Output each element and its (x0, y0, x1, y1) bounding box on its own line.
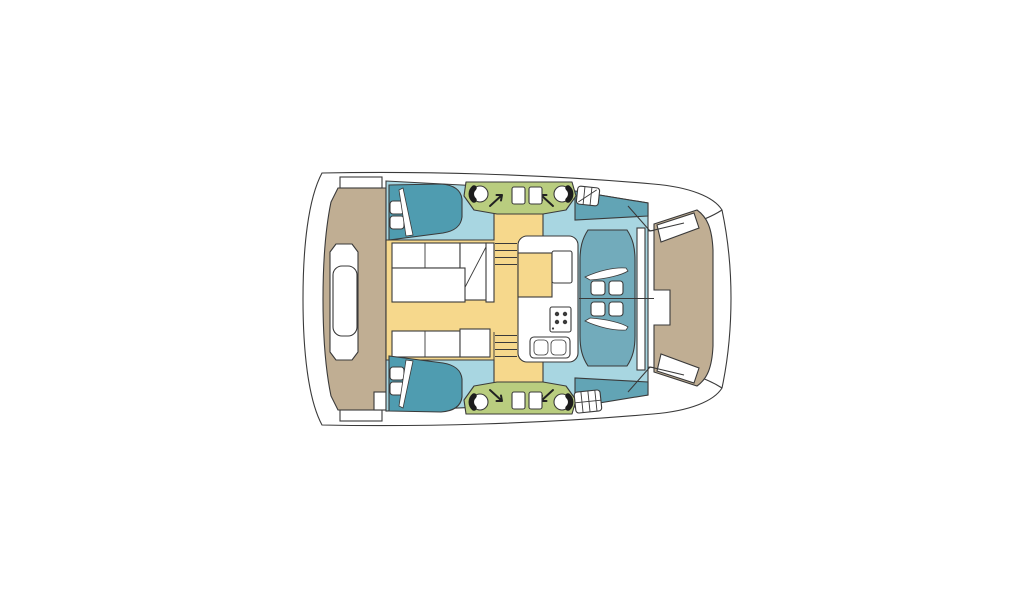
bench-seat (392, 331, 460, 357)
aft-deck (323, 177, 386, 421)
deck-hatch-port (576, 186, 600, 206)
bow-lounge (580, 230, 635, 366)
sink (530, 337, 570, 358)
chair-backrest (568, 396, 571, 408)
pillow (390, 216, 404, 229)
salon-sofa (392, 243, 494, 302)
cockpit-seating-starboard (464, 382, 576, 414)
chair-backrest (568, 188, 571, 200)
burner (563, 320, 567, 324)
forward-crossbeam (637, 228, 645, 370)
galley-floor (518, 253, 552, 297)
floor-plan-svg (0, 0, 1024, 600)
jump-seat (529, 392, 542, 409)
bench-cabinet (460, 329, 490, 357)
transom-step-top (340, 177, 382, 188)
bow-lounge-cushion (609, 281, 623, 295)
sink-bowl (534, 340, 548, 355)
bow-lounge-cushion (591, 281, 605, 295)
sofa-seat (392, 268, 465, 302)
aft-lounge-cushion (333, 266, 357, 336)
chair-backrest (471, 396, 474, 408)
jump-seat (512, 187, 525, 204)
bow-lounge-cushion (591, 302, 605, 316)
galley (518, 236, 578, 362)
jump-seat (529, 187, 542, 204)
cockpit-seating-port (464, 182, 576, 214)
bow-lounge-base (580, 230, 635, 366)
chair-backrest (471, 188, 474, 200)
sink-bowl (551, 340, 566, 355)
burner (555, 312, 559, 316)
aft-deck-step (374, 392, 386, 410)
pillow (390, 367, 404, 380)
galley-fridge (552, 251, 572, 283)
transom-step-bottom (340, 410, 382, 421)
burner (555, 320, 559, 324)
jump-seat (512, 392, 525, 409)
catamaran-floor-plan (0, 0, 1024, 600)
stove-knob (552, 327, 554, 329)
sofa-armrest (486, 243, 494, 302)
sofa-backrest (392, 243, 460, 268)
burner (563, 312, 567, 316)
stove (550, 307, 571, 332)
salon-bench (392, 329, 490, 357)
foredeck (628, 206, 713, 392)
deck-hatch-starboard (574, 390, 602, 414)
bow-lounge-cushion (609, 302, 623, 316)
